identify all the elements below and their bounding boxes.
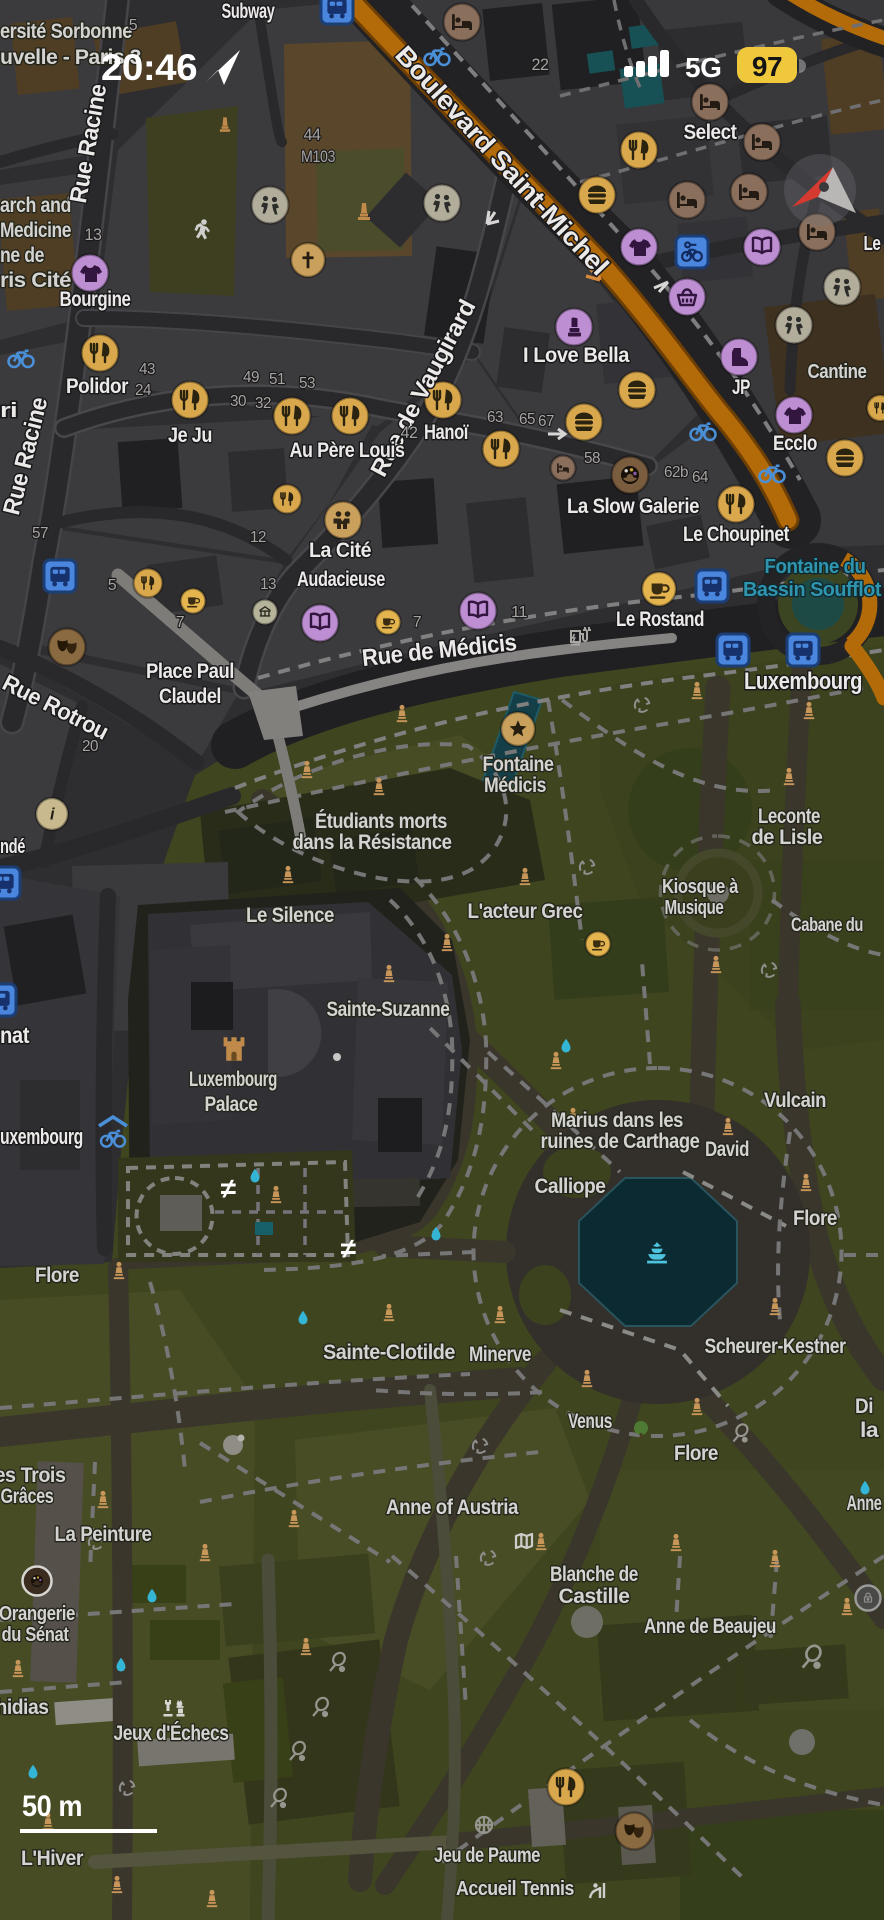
svg-text:Je Ju: Je Ju <box>168 424 212 447</box>
svg-text:Anne of Austria: Anne of Austria <box>386 1496 519 1519</box>
svg-text:Fontaine du: Fontaine du <box>765 556 866 578</box>
svg-text:Di: Di <box>855 1395 873 1418</box>
svg-text:Flore: Flore <box>35 1264 79 1287</box>
svg-text:Jeux d'Échecs: Jeux d'Échecs <box>114 1722 229 1745</box>
svg-text:Bassin Soufflot: Bassin Soufflot <box>743 579 882 601</box>
svg-text:nat: nat <box>0 1022 30 1048</box>
svg-text:Vulcain: Vulcain <box>764 1089 826 1112</box>
svg-text:L'acteur Grec: L'acteur Grec <box>468 900 584 923</box>
svg-text:Cantine: Cantine <box>808 361 867 383</box>
svg-text:Fontaine: Fontaine <box>483 753 554 776</box>
svg-text:51: 51 <box>269 371 286 388</box>
svg-text:Select: Select <box>684 121 737 144</box>
svg-text:Leconte: Leconte <box>758 805 820 828</box>
svg-text:Flore: Flore <box>674 1442 718 1465</box>
svg-text:49: 49 <box>243 369 260 386</box>
svg-text:Grâces: Grâces <box>1 1485 54 1508</box>
svg-text:Marius dans les: Marius dans les <box>551 1109 683 1132</box>
svg-text:Kiosque à: Kiosque à <box>662 876 739 898</box>
svg-text:Anne: Anne <box>847 1492 882 1515</box>
svg-text:13: 13 <box>260 576 277 593</box>
svg-text:Jeu de Paume: Jeu de Paume <box>434 1844 540 1867</box>
svg-text:Flore: Flore <box>793 1207 837 1230</box>
svg-text:65: 65 <box>519 411 536 428</box>
svg-text:63: 63 <box>487 409 504 426</box>
svg-text:5G: 5G <box>685 52 721 83</box>
svg-text:Anne de Beaujeu: Anne de Beaujeu <box>644 1615 776 1638</box>
svg-text:Accueil Tennis: Accueil Tennis <box>456 1878 574 1900</box>
svg-text:42: 42 <box>401 423 418 442</box>
svg-text:43: 43 <box>139 361 156 378</box>
svg-text:Musique: Musique <box>665 897 724 919</box>
svg-text:5: 5 <box>129 17 138 34</box>
svg-text:53: 53 <box>299 375 316 392</box>
svg-text:Calliope: Calliope <box>535 1175 606 1198</box>
svg-text:Place Paul: Place Paul <box>146 660 234 683</box>
svg-text:hidias: hidias <box>0 1696 49 1719</box>
svg-text:Cabane du: Cabane du <box>791 915 863 936</box>
svg-text:7: 7 <box>176 614 185 631</box>
svg-text:Luxembourg: Luxembourg <box>744 668 862 695</box>
svg-text:57: 57 <box>32 525 49 542</box>
svg-text:David: David <box>705 1138 749 1161</box>
svg-text:30: 30 <box>230 393 247 410</box>
svg-text:97: 97 <box>752 51 782 82</box>
svg-text:dans la Résistance: dans la Résistance <box>293 831 452 854</box>
svg-text:Scheurer-Kestner: Scheurer-Kestner <box>705 1335 846 1358</box>
svg-text:Subway: Subway <box>222 0 276 23</box>
svg-text:64: 64 <box>692 469 709 486</box>
svg-text:≠: ≠ <box>221 1173 236 1204</box>
svg-text:Médicis: Médicis <box>484 774 546 797</box>
svg-text:20:46: 20:46 <box>101 47 197 88</box>
svg-text:Bourgine: Bourgine <box>60 288 131 311</box>
svg-text:JP: JP <box>732 376 750 399</box>
svg-text:ri: ri <box>0 400 17 422</box>
svg-text:≠: ≠ <box>341 1233 356 1264</box>
svg-text:Blanche de: Blanche de <box>550 1563 638 1586</box>
svg-text:Claudel: Claudel <box>159 685 221 708</box>
svg-text:Le Rostand: Le Rostand <box>616 608 704 631</box>
svg-text:Medicine: Medicine <box>0 219 71 242</box>
svg-text:7: 7 <box>413 614 422 631</box>
svg-text:la: la <box>860 1419 879 1442</box>
svg-text:Le Silence: Le Silence <box>246 904 334 927</box>
svg-text:arch and: arch and <box>0 194 71 217</box>
svg-text:Ecclo: Ecclo <box>773 432 817 455</box>
svg-text:Audacieuse: Audacieuse <box>297 568 385 591</box>
svg-text:M103: M103 <box>301 147 335 166</box>
svg-text:uxembourg: uxembourg <box>0 1124 83 1149</box>
svg-text:Palace: Palace <box>205 1093 258 1116</box>
svg-text:Le Choupinet: Le Choupinet <box>683 523 789 546</box>
svg-text:5: 5 <box>108 577 117 594</box>
svg-text:Hanoï: Hanoï <box>424 421 469 444</box>
svg-text:Orangerie: Orangerie <box>0 1603 75 1625</box>
svg-text:Polidor: Polidor <box>66 375 128 398</box>
svg-text:20: 20 <box>82 738 99 755</box>
svg-text:Étudiants morts: Étudiants morts <box>315 810 447 833</box>
svg-text:22: 22 <box>532 55 549 74</box>
svg-text:Sainte-Suzanne: Sainte-Suzanne <box>327 998 450 1021</box>
svg-text:L'Hiver: L'Hiver <box>21 1847 83 1870</box>
svg-text:50 m: 50 m <box>22 1790 82 1823</box>
svg-text:Luxembourg: Luxembourg <box>189 1068 277 1091</box>
svg-text:Castille: Castille <box>559 1585 630 1608</box>
svg-text:Sainte-Clotilde: Sainte-Clotilde <box>323 1341 455 1364</box>
svg-text:ruines de Carthage: ruines de Carthage <box>541 1130 700 1153</box>
svg-text:de Lisle: de Lisle <box>752 826 823 849</box>
svg-text:La Slow Galerie: La Slow Galerie <box>567 495 699 518</box>
svg-text:Venus: Venus <box>568 1410 612 1433</box>
svg-text:Au Père Louis: Au Père Louis <box>290 439 405 462</box>
svg-text:es Trois: es Trois <box>0 1464 66 1487</box>
svg-text:24: 24 <box>135 382 152 399</box>
svg-text:67: 67 <box>538 413 555 430</box>
svg-text:La Peinture: La Peinture <box>55 1523 152 1546</box>
svg-text:ndé: ndé <box>0 836 25 858</box>
svg-text:ne de: ne de <box>0 244 44 267</box>
svg-text:11: 11 <box>511 604 528 621</box>
svg-text:44: 44 <box>304 125 321 144</box>
svg-text:La Cité: La Cité <box>309 539 371 562</box>
svg-text:du Sénat: du Sénat <box>2 1624 70 1646</box>
svg-text:I Love Bella: I Love Bella <box>523 344 630 367</box>
svg-text:13: 13 <box>85 225 102 244</box>
svg-text:32: 32 <box>255 395 272 412</box>
svg-text:62b: 62b <box>664 464 689 481</box>
svg-text:Minerve: Minerve <box>469 1343 531 1366</box>
svg-text:12: 12 <box>250 529 267 546</box>
svg-text:Le: Le <box>864 233 881 255</box>
svg-text:58: 58 <box>584 450 601 467</box>
svg-text:ersité Sorbonne: ersité Sorbonne <box>0 20 132 43</box>
